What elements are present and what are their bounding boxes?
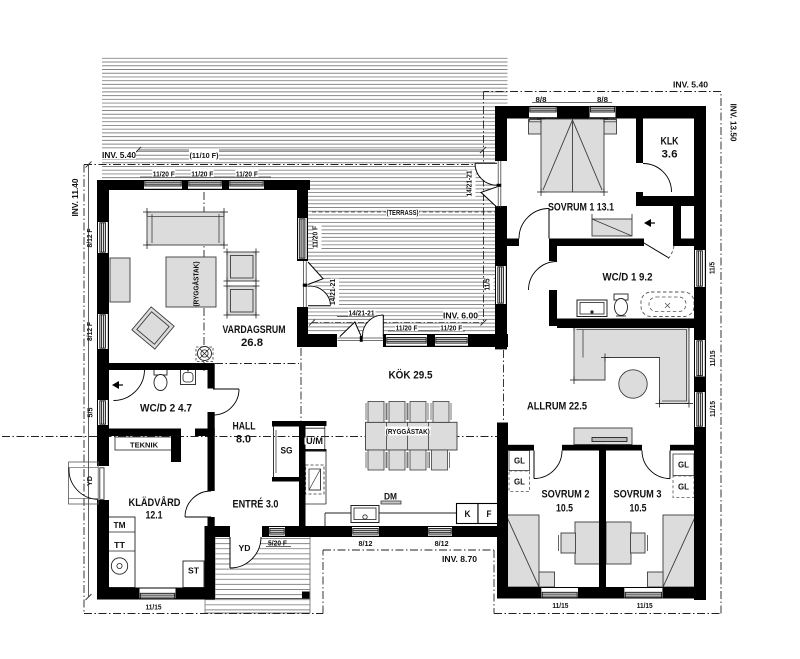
svg-text:11/15: 11/15 — [708, 351, 717, 367]
svg-text:5/20 F: 5/20 F — [268, 539, 287, 548]
svg-text:(RYGGÅSTAK): (RYGGÅSTAK) — [192, 262, 201, 307]
svg-text:WC/D 1 9.2: WC/D 1 9.2 — [603, 272, 653, 284]
svg-text:ENTRÉ 3.0: ENTRÉ 3.0 — [233, 498, 279, 511]
svg-text:8/12 F: 8/12 F — [85, 228, 94, 247]
svg-text:KLK: KLK — [661, 136, 679, 148]
svg-text:ST: ST — [188, 567, 199, 576]
svg-text:5/5: 5/5 — [86, 408, 95, 418]
svg-text:8/12 F: 8/12 F — [85, 322, 94, 341]
svg-text:8/12: 8/12 — [359, 539, 373, 548]
svg-text:SG: SG — [281, 446, 293, 456]
svg-text:TM: TM — [114, 521, 126, 530]
svg-text:14/21-21: 14/21-21 — [349, 309, 375, 318]
svg-text:SOVRUM 2: SOVRUM 2 — [542, 489, 590, 501]
svg-text:INV. 8.70: INV. 8.70 — [442, 555, 478, 564]
svg-text:INV. 5.40: INV. 5.40 — [102, 151, 137, 160]
svg-text:SOVRUM 1 13.1: SOVRUM 1 13.1 — [548, 202, 614, 214]
svg-text:10.5: 10.5 — [630, 503, 647, 515]
svg-text:GL: GL — [514, 457, 525, 466]
svg-text:INV. 13.50: INV. 13.50 — [729, 104, 738, 143]
svg-text:F: F — [487, 509, 492, 519]
svg-text:11/15: 11/15 — [552, 601, 568, 610]
svg-text:GL: GL — [514, 478, 525, 487]
svg-text:TT: TT — [114, 541, 125, 550]
svg-text:WC/D 2 4.7: WC/D 2 4.7 — [140, 403, 192, 415]
svg-text:14/21-21: 14/21-21 — [328, 279, 337, 305]
svg-text:11/5: 11/5 — [708, 262, 717, 274]
svg-text:10.5: 10.5 — [556, 503, 573, 515]
svg-text:SOVRUM 3: SOVRUM 3 — [614, 489, 662, 501]
svg-text:INV. 11.40: INV. 11.40 — [71, 178, 80, 217]
svg-text:11/15: 11/15 — [146, 603, 162, 612]
svg-text:11/20 F: 11/20 F — [440, 324, 462, 333]
svg-text:TEKNIK: TEKNIK — [130, 441, 159, 450]
svg-text:8/8: 8/8 — [597, 95, 608, 104]
svg-text:(RYGGÅSTAK): (RYGGÅSTAK) — [386, 427, 430, 436]
svg-text:8.0: 8.0 — [236, 434, 251, 446]
svg-text:11/15: 11/15 — [708, 401, 717, 417]
svg-text:11/15: 11/15 — [637, 601, 653, 610]
svg-text:26.8: 26.8 — [241, 337, 263, 349]
svg-text:K: K — [465, 509, 471, 519]
svg-text:YD: YD — [239, 544, 251, 553]
svg-text:INV. 6.00: INV. 6.00 — [443, 311, 479, 320]
svg-text:11/20 F: 11/20 F — [191, 170, 213, 179]
svg-text:VARDAGSRUM: VARDAGSRUM — [223, 324, 286, 336]
svg-text:GL: GL — [678, 483, 689, 492]
svg-text:INV. 5.40: INV. 5.40 — [673, 81, 709, 90]
svg-text:14/21-21: 14/21-21 — [465, 171, 474, 197]
svg-text:DM: DM — [384, 492, 397, 502]
svg-text:11/20 F: 11/20 F — [153, 170, 175, 179]
svg-text:KLÄDVÅRD: KLÄDVÅRD — [129, 496, 181, 509]
svg-text:(11/10 F): (11/10 F) — [190, 151, 219, 160]
svg-text:ALLRUM 22.5: ALLRUM 22.5 — [527, 401, 587, 413]
svg-text:U/M: U/M — [306, 436, 323, 446]
svg-text:11/20 F: 11/20 F — [396, 324, 418, 333]
svg-text:YD: YD — [85, 475, 94, 486]
svg-text:3.6: 3.6 — [662, 149, 678, 161]
svg-text:8/12: 8/12 — [435, 539, 449, 548]
svg-text:HALL: HALL — [233, 421, 256, 433]
svg-text:KÖK 29.5: KÖK 29.5 — [389, 369, 433, 382]
svg-text:8/8: 8/8 — [536, 95, 547, 104]
svg-text:GL: GL — [678, 461, 689, 470]
svg-text:(TERRASS): (TERRASS) — [387, 208, 419, 217]
svg-text:11/20 F: 11/20 F — [311, 226, 320, 248]
svg-text:12.1: 12.1 — [146, 510, 163, 522]
svg-text:11/20 F: 11/20 F — [236, 170, 258, 179]
svg-text:11/5: 11/5 — [483, 279, 492, 291]
